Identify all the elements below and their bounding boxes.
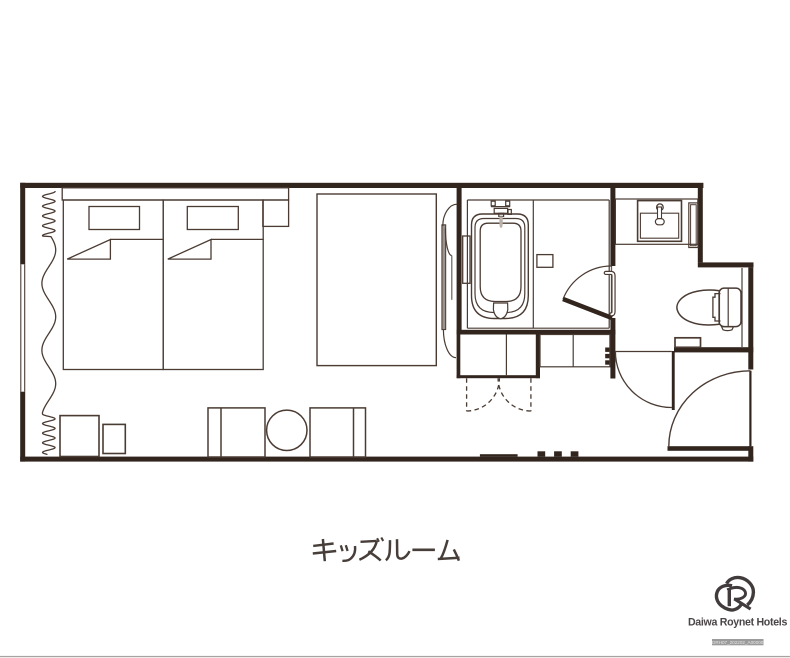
- svg-text:Daiwa Roynet Hotels: Daiwa Roynet Hotels: [688, 616, 787, 628]
- svg-text:DRH07_202202_A00000: DRH07_202202_A00000: [712, 640, 764, 645]
